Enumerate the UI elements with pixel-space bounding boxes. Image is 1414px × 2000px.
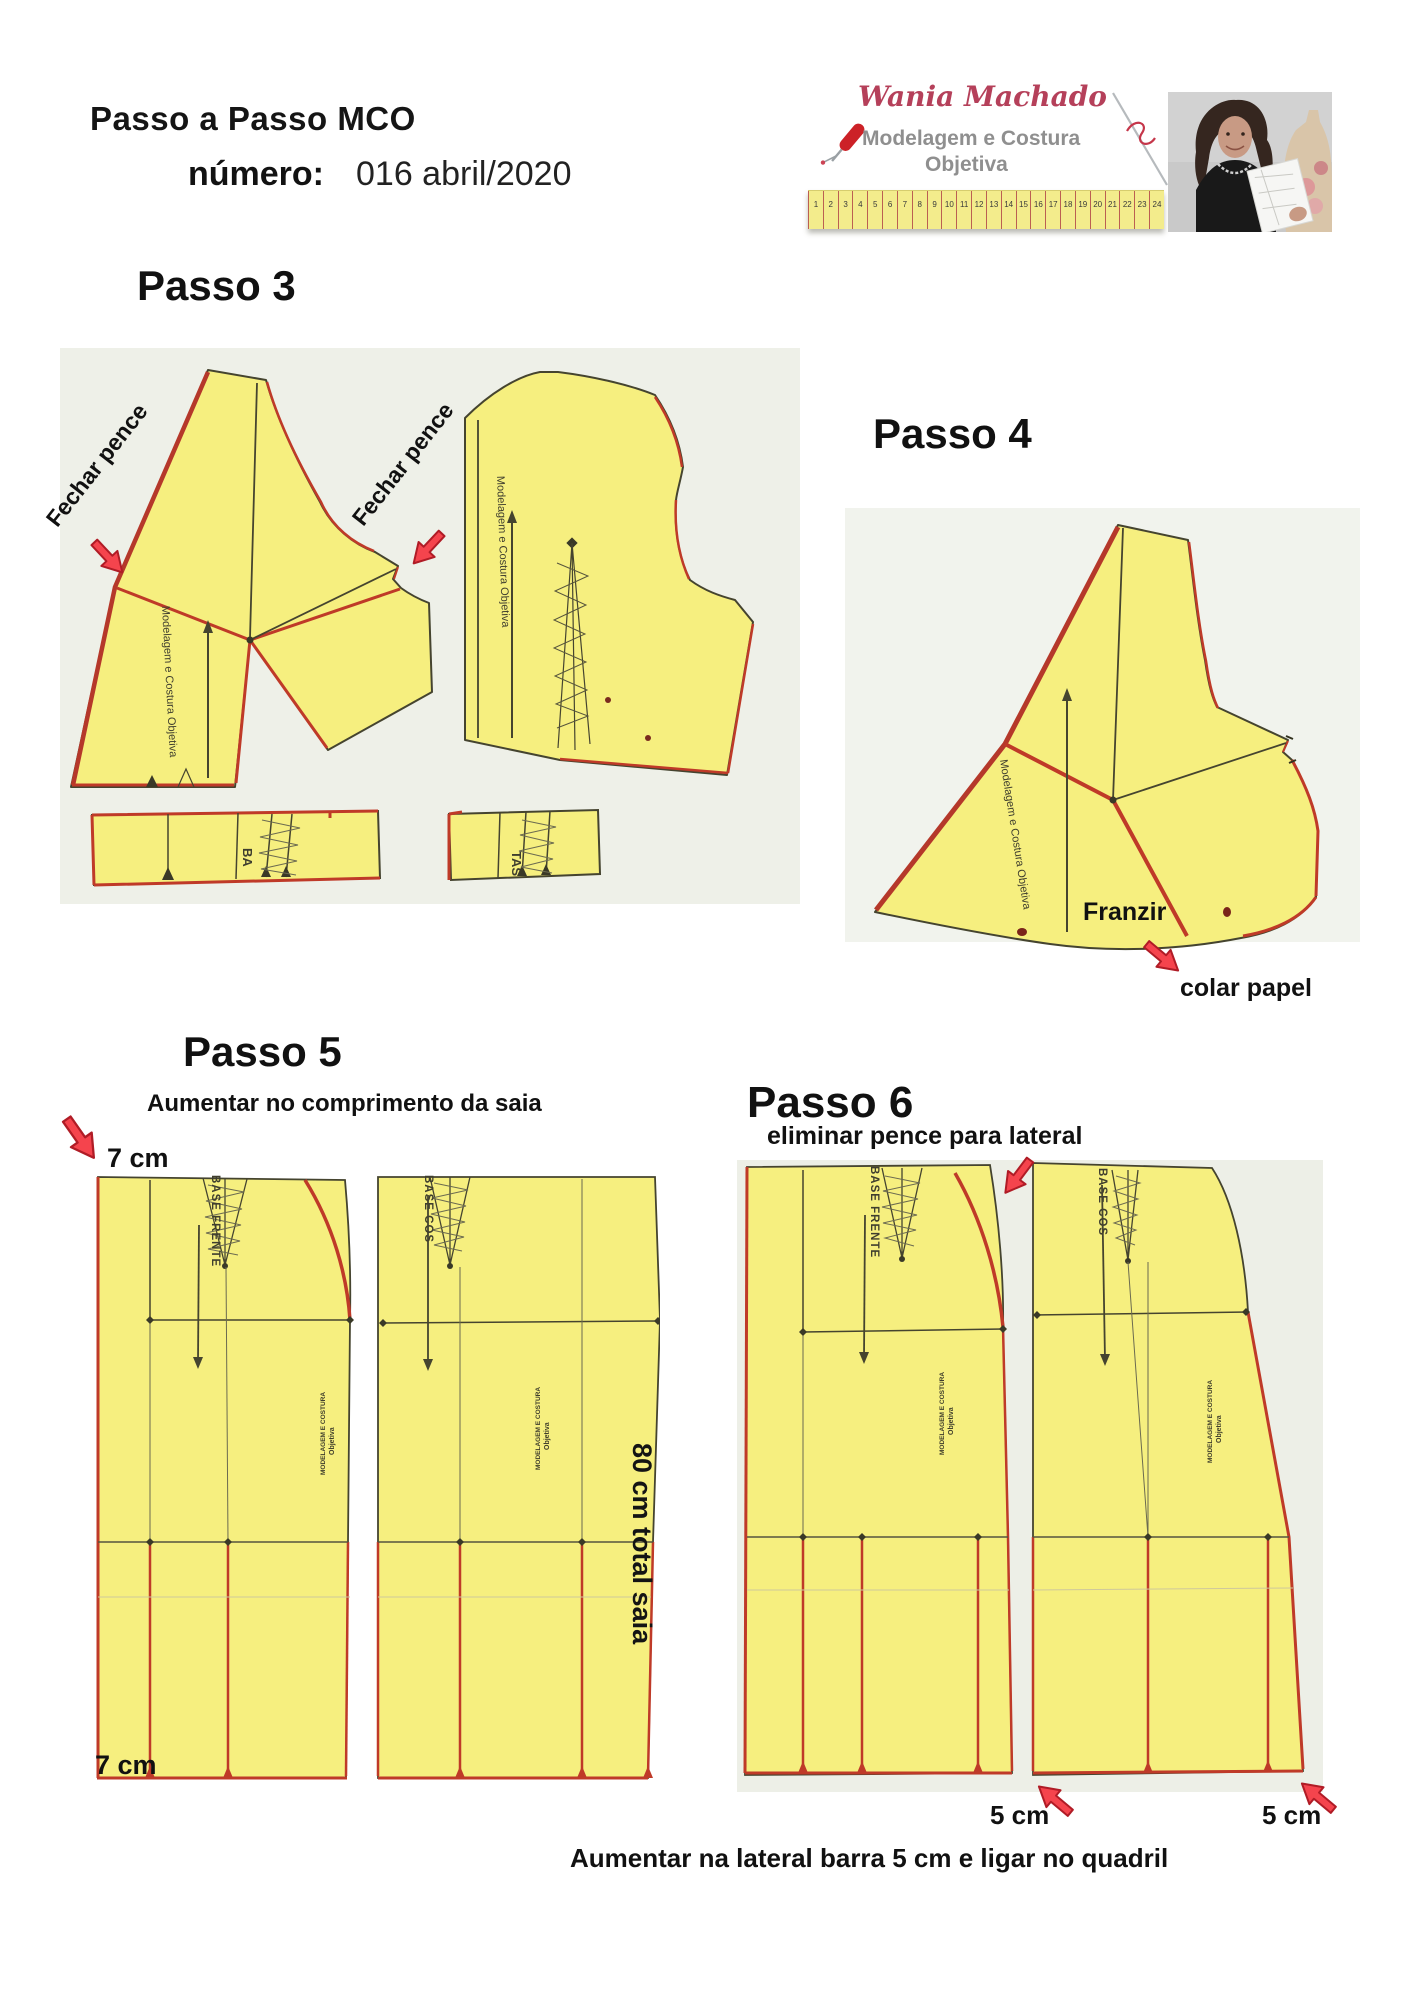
svg-text:MODELAGEM E COSTURA: MODELAGEM E COSTURA xyxy=(939,1372,946,1455)
step5-heading: Passo 5 xyxy=(183,1028,342,1076)
brand-photo xyxy=(1168,92,1332,232)
svg-text:Objetiva: Objetiva xyxy=(948,1407,955,1435)
step3-heading: Passo 3 xyxy=(137,262,296,310)
ruler-number: 14 xyxy=(1001,191,1016,229)
ruler-number: 7 xyxy=(897,191,912,229)
ruler-number: 24 xyxy=(1149,191,1164,229)
ruler-number: 5 xyxy=(867,191,882,229)
red-arrow-icon xyxy=(53,1108,108,1168)
step4-heading: Passo 4 xyxy=(873,410,1032,458)
issue-number-label: número: xyxy=(188,155,324,194)
issue-row: número: 016 abril/2020 xyxy=(188,155,572,194)
ruler-number: 2 xyxy=(823,191,838,229)
svg-text:Objetiva: Objetiva xyxy=(1216,1415,1223,1443)
ruler-number: 16 xyxy=(1030,191,1045,229)
woman-face xyxy=(1218,116,1252,158)
ruler: 123456789101112131415161718192021222324 xyxy=(808,190,1164,229)
ruler-number: 6 xyxy=(882,191,897,229)
brand-script-name: Wania Machado xyxy=(858,80,1107,113)
step6-caption: Aumentar na lateral barra 5 cm e ligar n… xyxy=(570,1843,1168,1874)
ruler-number: 20 xyxy=(1090,191,1105,229)
page-title: Passo a Passo MCO xyxy=(90,100,416,138)
brand-logo: Wania Machado Modelagem e Costura Objeti… xyxy=(805,55,1335,235)
ruler-number: 17 xyxy=(1045,191,1060,229)
ruler-number: 9 xyxy=(927,191,942,229)
tutorial-page: Passo a Passo MCO número: 016 abril/2020… xyxy=(0,0,1414,2000)
colar-papel-label: colar papel xyxy=(1180,974,1312,1003)
front-piece-label: BASE FRENTE xyxy=(209,1175,221,1267)
front-piece-label: BASE FRENTE xyxy=(868,1166,880,1258)
brand-tagline-2: Objetiva xyxy=(925,153,1008,177)
ruler-number: 1 xyxy=(808,191,823,229)
ruler-numbers: 123456789101112131415161718192021222324 xyxy=(808,191,1164,229)
skirt-back-piece xyxy=(378,1177,660,1778)
ruler-number: 10 xyxy=(941,191,956,229)
step5-scan: BASE FRENTE MODELAGEM E COSTURA Objetiva… xyxy=(95,1165,660,1797)
svg-text:MODELAGEM E COSTURA: MODELAGEM E COSTURA xyxy=(1207,1380,1214,1463)
step5-subtitle: Aumentar no comprimento da saia xyxy=(147,1090,542,1118)
ruler-number: 4 xyxy=(852,191,867,229)
step6-heading: Passo 6 xyxy=(747,1078,913,1128)
seven-cm-bottom-label: 7 cm xyxy=(95,1750,157,1781)
ruler-number: 15 xyxy=(1016,191,1031,229)
five-cm-left-label: 5 cm xyxy=(990,1800,1049,1831)
strip-label: BA xyxy=(240,848,255,867)
total-length-label: 80 cm total saia xyxy=(627,1443,657,1645)
svg-text:MODELAGEM E COSTURA: MODELAGEM E COSTURA xyxy=(320,1392,327,1475)
ruler-number: 19 xyxy=(1075,191,1090,229)
needle-icon xyxy=(1095,83,1175,193)
svg-text:Objetiva: Objetiva xyxy=(329,1427,336,1455)
issue-number-value: 016 abril/2020 xyxy=(356,155,572,194)
ruler-number: 12 xyxy=(971,191,986,229)
svg-text:Objetiva: Objetiva xyxy=(544,1422,551,1450)
ruler-number: 13 xyxy=(986,191,1001,229)
five-cm-right-label: 5 cm xyxy=(1262,1800,1321,1831)
ruler-number: 11 xyxy=(956,191,971,229)
ruler-number: 23 xyxy=(1134,191,1149,229)
step6-scan: BASE FRENTE MODELAGEM E COSTURA Objetiva… xyxy=(737,1160,1337,1800)
franzir-label: Franzir xyxy=(1083,898,1166,927)
step6-subtitle: eliminar pence para lateral xyxy=(767,1122,1082,1151)
ruler-number: 8 xyxy=(912,191,927,229)
ruler-number: 21 xyxy=(1105,191,1120,229)
brand-tagline-1: Modelagem e Costura xyxy=(862,127,1080,151)
svg-text:MODELAGEM E COSTURA: MODELAGEM E COSTURA xyxy=(535,1387,542,1470)
ruler-number: 22 xyxy=(1119,191,1134,229)
ruler-number: 3 xyxy=(838,191,853,229)
ruler-number: 18 xyxy=(1060,191,1075,229)
